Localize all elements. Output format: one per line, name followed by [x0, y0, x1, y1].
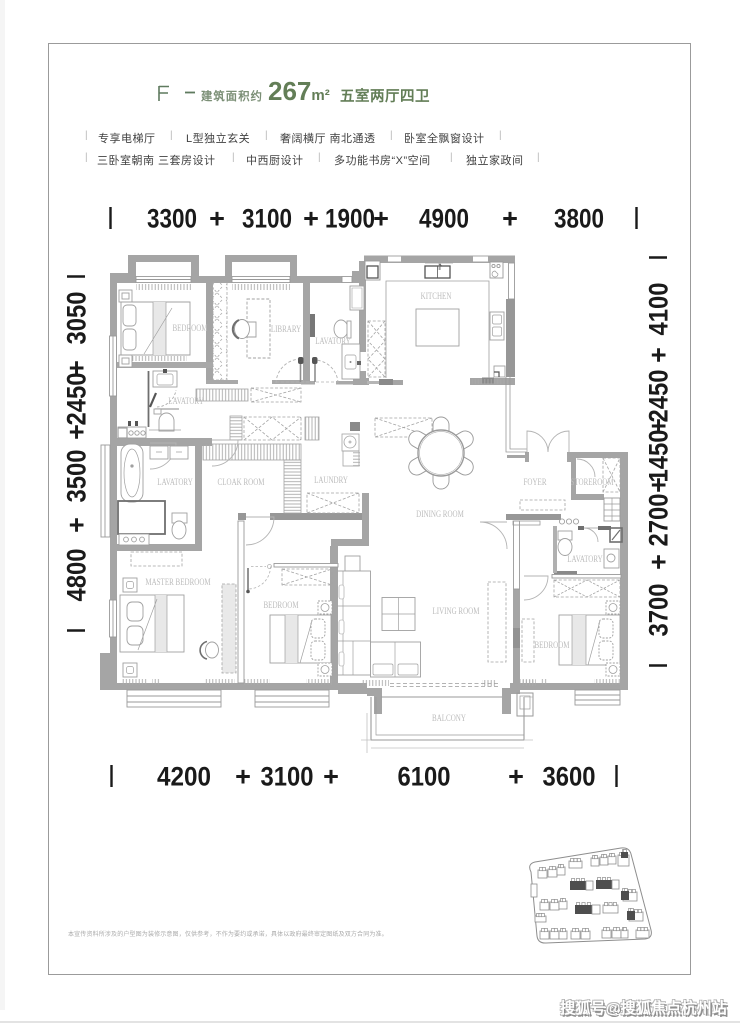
- svg-text:STOREROOM: STOREROOM: [570, 477, 613, 487]
- svg-text:2450: 2450: [62, 373, 92, 426]
- svg-text:FOYER: FOYER: [524, 477, 548, 487]
- svg-text:LIBRARY: LIBRARY: [271, 324, 302, 334]
- svg-text:LAVATORY: LAVATORY: [157, 477, 193, 487]
- svg-text:DINING ROOM: DINING ROOM: [416, 509, 464, 519]
- svg-text:+: +: [373, 204, 389, 234]
- svg-text:KITCHEN: KITCHEN: [421, 291, 452, 301]
- svg-text:4200: 4200: [157, 762, 211, 792]
- svg-text:3050: 3050: [62, 292, 92, 345]
- svg-text:1900: 1900: [325, 204, 375, 234]
- svg-text:+: +: [323, 762, 339, 792]
- svg-text:4800: 4800: [62, 549, 92, 602]
- svg-text:+: +: [62, 517, 92, 533]
- svg-text:+: +: [644, 554, 674, 570]
- svg-text:4900: 4900: [419, 204, 469, 234]
- svg-text:+: +: [508, 762, 524, 792]
- svg-text:+: +: [209, 204, 225, 234]
- svg-text:BEDROOM: BEDROOM: [172, 323, 207, 333]
- svg-text:BEDROOM: BEDROOM: [263, 600, 298, 610]
- svg-text:LAVATORY: LAVATORY: [567, 554, 603, 564]
- svg-text:BALCONY: BALCONY: [432, 713, 466, 723]
- svg-text:+: +: [303, 204, 319, 234]
- svg-text:+: +: [235, 762, 251, 792]
- svg-text:1450: 1450: [644, 430, 674, 483]
- svg-text:3800: 3800: [554, 204, 604, 234]
- svg-text:3300: 3300: [147, 204, 197, 234]
- svg-text:2450: 2450: [644, 370, 674, 423]
- svg-text:MASTER BEDROOM: MASTER BEDROOM: [145, 577, 210, 587]
- svg-text:3100: 3100: [261, 762, 314, 792]
- svg-text:+: +: [644, 347, 674, 363]
- svg-text:6100: 6100: [398, 762, 451, 792]
- svg-text:3700: 3700: [644, 584, 674, 637]
- svg-text:+: +: [62, 424, 92, 440]
- svg-text:LAUNDRY: LAUNDRY: [314, 475, 348, 485]
- svg-text:3100: 3100: [242, 204, 292, 234]
- svg-text:LAVATORY: LAVATORY: [315, 336, 351, 346]
- svg-text:3500: 3500: [62, 450, 92, 503]
- svg-text:+: +: [502, 204, 518, 234]
- svg-text:4100: 4100: [644, 283, 674, 336]
- svg-text:BEDROOM: BEDROOM: [534, 640, 569, 650]
- svg-text:CLOAK ROOM: CLOAK ROOM: [218, 477, 265, 487]
- svg-text:3600: 3600: [543, 762, 596, 792]
- svg-text:+: +: [644, 477, 674, 493]
- svg-text:LIVING ROOM: LIVING ROOM: [433, 606, 480, 616]
- svg-text:2700: 2700: [644, 494, 674, 547]
- svg-text:LAVATORY: LAVATORY: [168, 396, 204, 406]
